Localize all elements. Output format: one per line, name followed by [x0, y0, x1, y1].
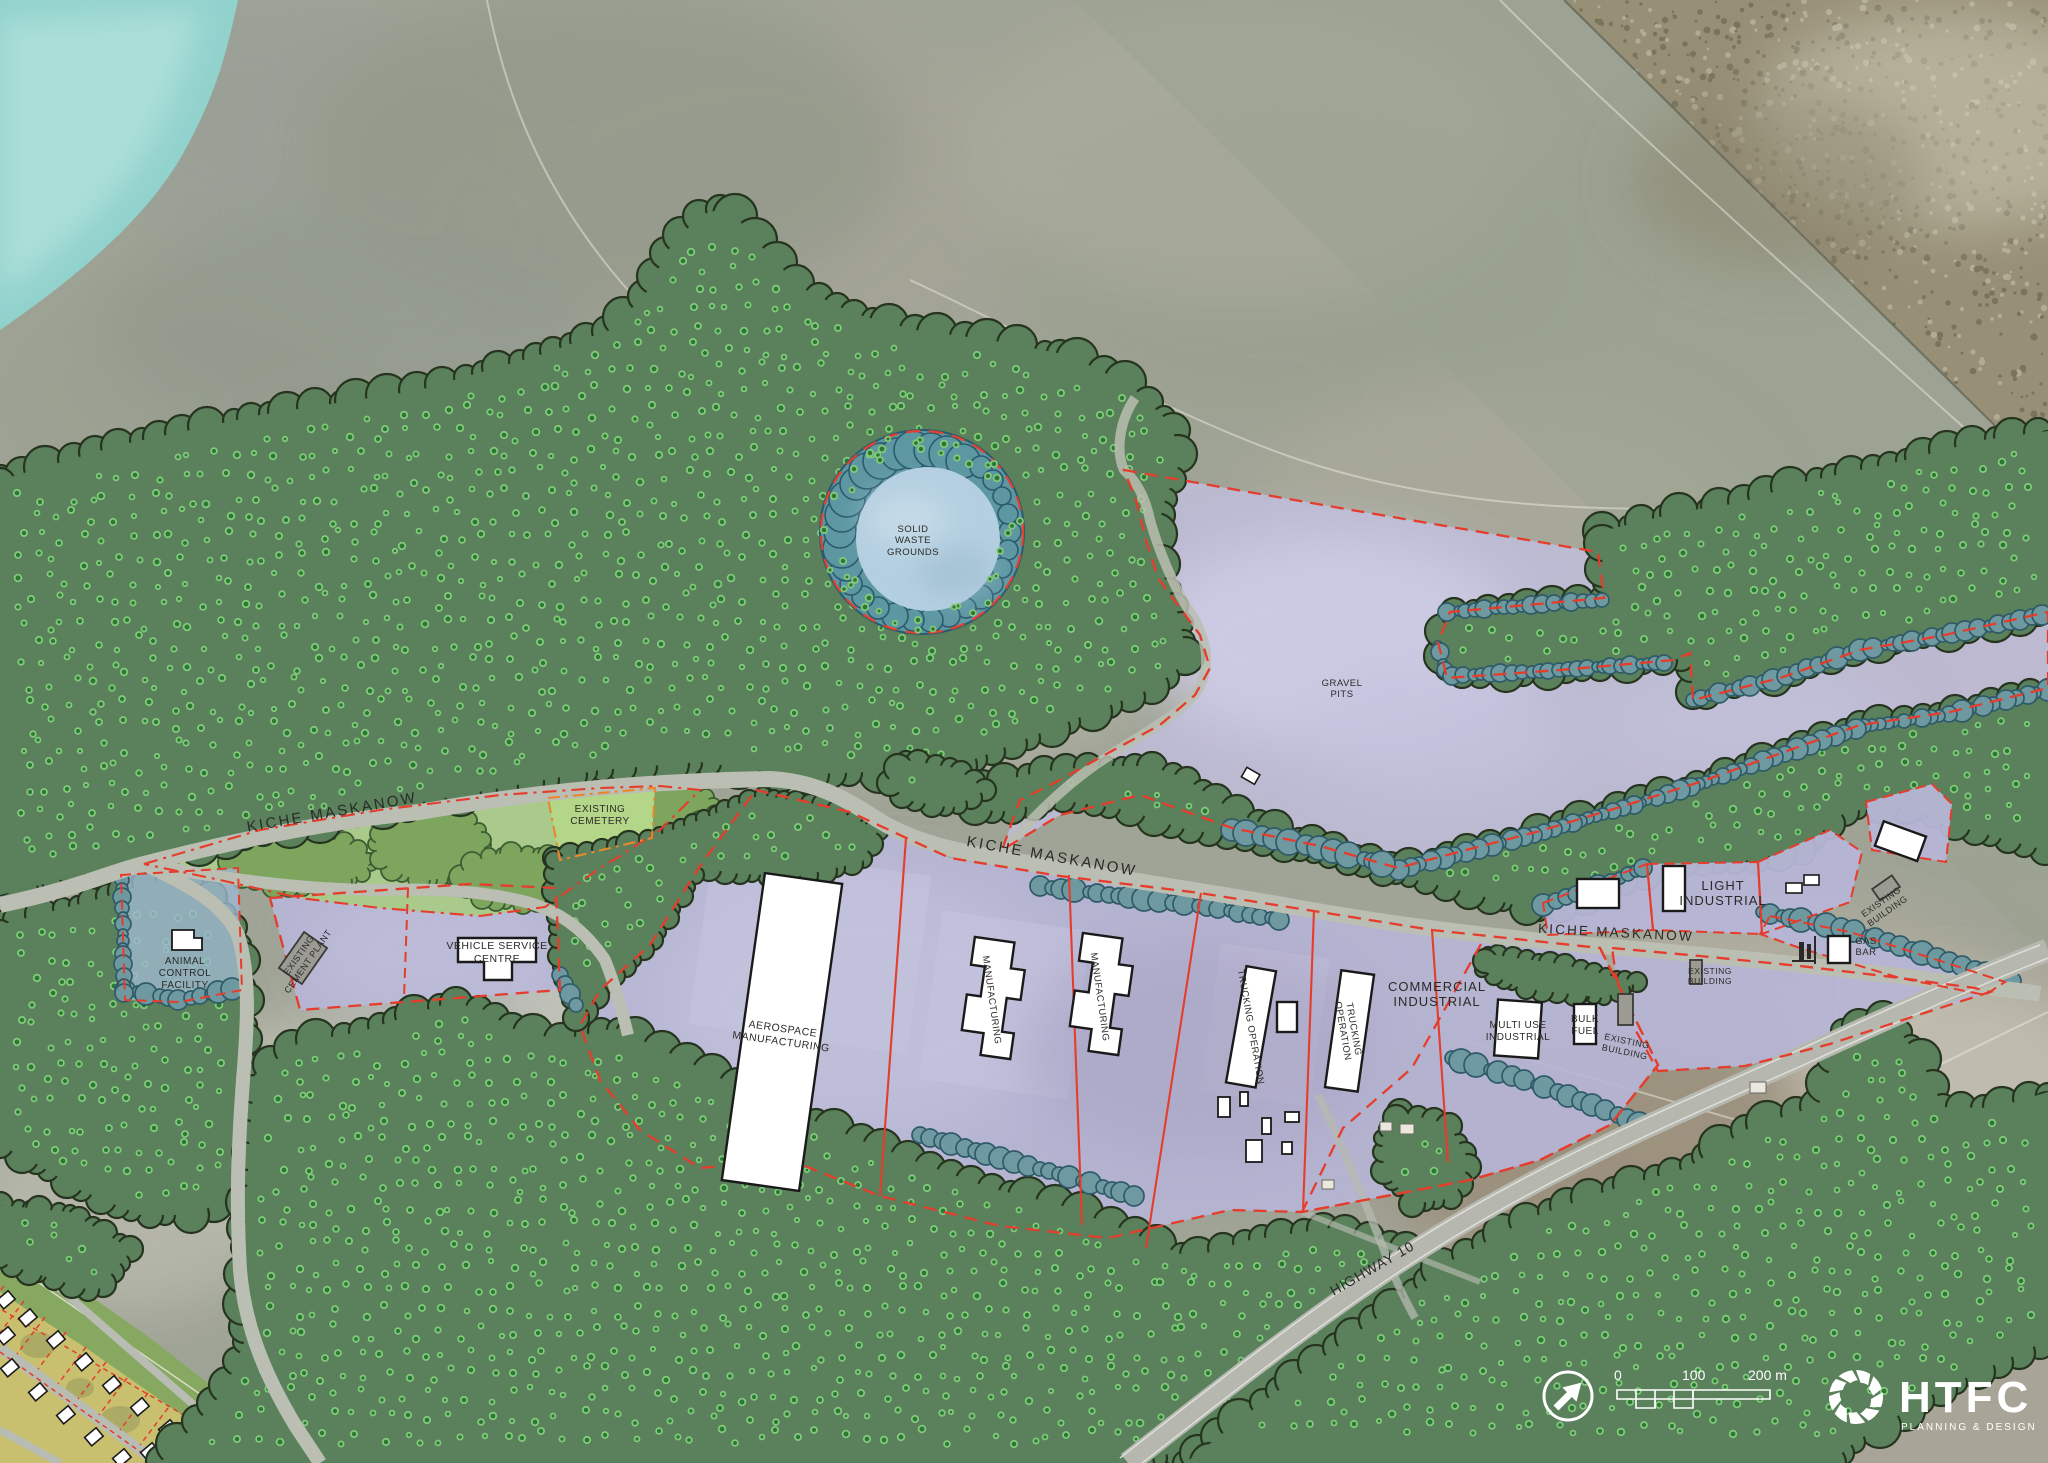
svg-text:INDUSTRIAL: INDUSTRIAL: [1679, 893, 1766, 908]
svg-text:PITS: PITS: [1330, 689, 1353, 700]
svg-text:GRAVEL: GRAVEL: [1322, 678, 1363, 689]
svg-text:BULK: BULK: [1571, 1014, 1599, 1025]
svg-text:CENTRE: CENTRE: [474, 953, 520, 965]
svg-text:BAR: BAR: [1855, 947, 1876, 958]
svg-text:GROUNDS: GROUNDS: [887, 547, 939, 558]
svg-text:GAS: GAS: [1855, 936, 1877, 947]
svg-text:LIGHT: LIGHT: [1701, 878, 1744, 893]
svg-text:SOLID: SOLID: [897, 524, 928, 535]
svg-text:200 m: 200 m: [1748, 1367, 1787, 1383]
svg-text:VEHICLE SERVICE: VEHICLE SERVICE: [446, 940, 547, 952]
svg-text:WASTE: WASTE: [895, 535, 931, 546]
svg-text:CEMETERY: CEMETERY: [570, 816, 629, 827]
svg-text:BUILDING: BUILDING: [1688, 976, 1732, 986]
svg-text:FACILITY: FACILITY: [161, 980, 208, 991]
svg-text:100: 100: [1682, 1367, 1706, 1383]
svg-text:ANIMAL: ANIMAL: [165, 956, 205, 967]
svg-text:FUEL: FUEL: [1571, 1026, 1599, 1037]
svg-text:INDUSTRIAL: INDUSTRIAL: [1393, 994, 1480, 1009]
svg-text:EXISTING: EXISTING: [1688, 966, 1732, 976]
svg-text:EXISTING: EXISTING: [575, 804, 626, 815]
svg-text:INDUSTRIAL: INDUSTRIAL: [1486, 1032, 1550, 1043]
svg-text:COMMERCIAL: COMMERCIAL: [1388, 979, 1486, 994]
svg-text:0: 0: [1614, 1367, 1622, 1383]
svg-text:PLANNING & DESIGN: PLANNING & DESIGN: [1901, 1422, 2037, 1433]
svg-text:CONTROL: CONTROL: [159, 968, 211, 979]
svg-text:HTFC: HTFC: [1899, 1373, 2032, 1422]
svg-text:MULTI USE: MULTI USE: [1489, 1020, 1546, 1031]
